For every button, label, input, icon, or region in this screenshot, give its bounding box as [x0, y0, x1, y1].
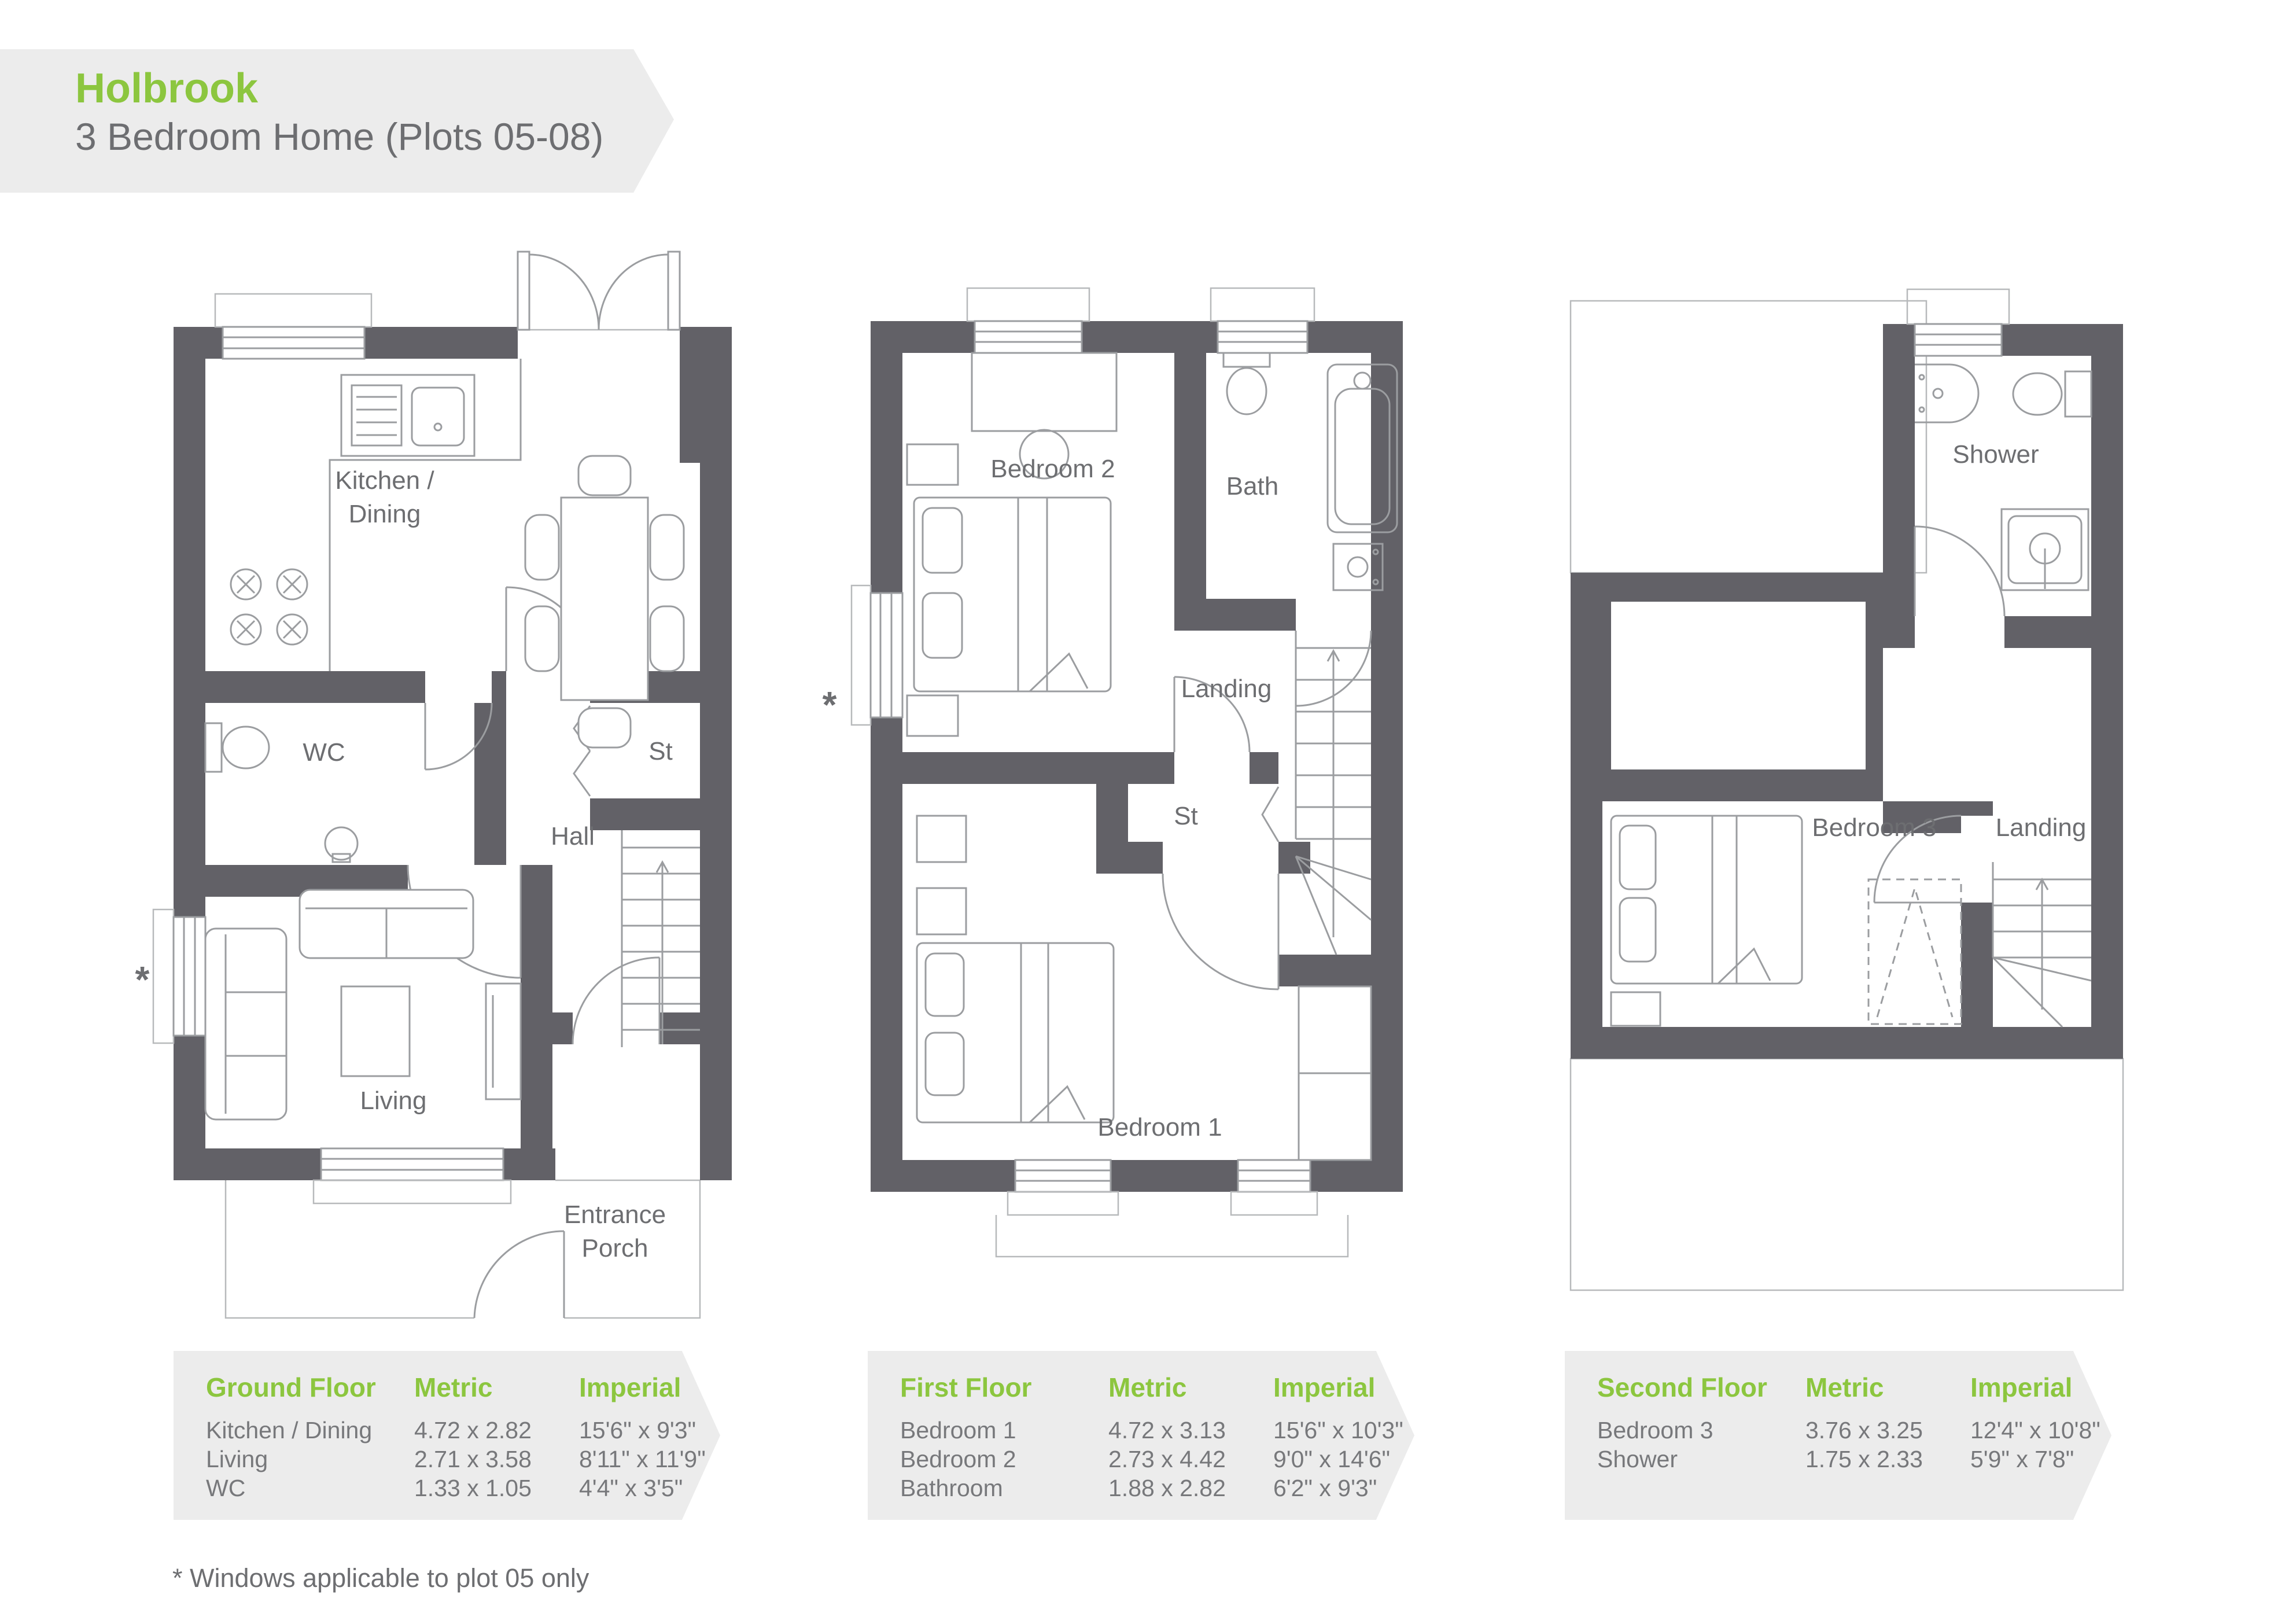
room-label-living: Living	[360, 1087, 427, 1115]
table-row: Shower 1.75 x 2.33 5'9" x 7'8"	[1597, 1445, 2111, 1474]
cell-metric: 4.72 x 2.82	[414, 1416, 579, 1445]
cell-metric: 2.73 x 4.42	[1108, 1445, 1273, 1474]
header-banner: Holbrook 3 Bedroom Home (Plots 05-08)	[0, 49, 674, 193]
cell-metric: 1.88 x 2.82	[1108, 1474, 1273, 1503]
room-label-entrance-2: Porch	[582, 1234, 648, 1262]
col-imperial: Imperial	[1273, 1372, 1414, 1403]
col-imperial: Imperial	[579, 1372, 720, 1403]
first-floor-plan: Bedroom 2 Bath Landing St Bedroom 1 *	[810, 278, 1423, 1284]
room-label-kitchen-1: Kitchen /	[335, 466, 434, 495]
cell-room: Bedroom 2	[900, 1445, 1108, 1474]
eaves-void	[1611, 602, 1866, 769]
room-label-st: St	[648, 737, 673, 765]
wardrobe-dashed	[1869, 879, 1961, 1024]
table-title: Second Floor	[1597, 1372, 1805, 1403]
room-label-bedroom1: Bedroom 1	[1097, 1113, 1222, 1141]
table-row: Kitchen / Dining 4.72 x 2.82 15'6" x 9'3…	[206, 1416, 720, 1445]
table-row: Bedroom 1 4.72 x 3.13 15'6" x 10'3"	[900, 1416, 1414, 1445]
stairs	[1993, 862, 2091, 1027]
roof-hatch-bottom	[1571, 1059, 2123, 1290]
room-label-shower: Shower	[1952, 440, 2039, 469]
cell-imperial: 5'9" x 7'8"	[1970, 1445, 2111, 1474]
roof-hatch-top	[1571, 301, 1926, 573]
floorplan-page: Holbrook 3 Bedroom Home (Plots 05-08)	[0, 0, 2296, 1624]
shower-door-opening	[1915, 616, 2004, 648]
table-row: Living 2.71 x 3.58 8'11" x 11'9"	[206, 1445, 720, 1474]
window-note-asterisk: *	[135, 959, 150, 1000]
second-floor-plan: Shower Bedroom 3 Landing	[1533, 278, 2146, 1296]
cell-metric: 4.72 x 3.13	[1108, 1416, 1273, 1445]
bedroom3-furniture	[1611, 816, 1961, 1026]
col-metric: Metric	[1108, 1372, 1273, 1403]
room-label-landing: Landing	[1181, 675, 1272, 703]
table-row: WC 1.33 x 1.05 4'4" x 3'5"	[206, 1474, 720, 1503]
table-header: First Floor Metric Imperial	[900, 1372, 1414, 1403]
cell-imperial: 12'4" x 10'8"	[1970, 1416, 2111, 1445]
cell-metric: 2.71 x 3.58	[414, 1445, 579, 1474]
room-label-st: St	[1174, 802, 1198, 830]
room-label-entrance-1: Entrance	[564, 1200, 666, 1229]
cell-metric: 3.76 x 3.25	[1805, 1416, 1970, 1445]
cell-imperial: 9'0" x 14'6"	[1273, 1445, 1414, 1474]
ground-floor-plan: Kitchen / Dining WC St Hall Living Entra…	[121, 243, 746, 1342]
table-row: Bedroom 3 3.76 x 3.25 12'4" x 10'8"	[1597, 1416, 2111, 1445]
bedroom2-furniture	[907, 353, 1116, 736]
table-header: Second Floor Metric Imperial	[1597, 1372, 2111, 1403]
cell-room: Bedroom 1	[900, 1416, 1108, 1445]
window-note-asterisk: *	[823, 684, 837, 726]
room-label-landing: Landing	[1996, 813, 2087, 842]
cell-imperial: 6'2" x 9'3"	[1273, 1474, 1414, 1503]
bedroom3-door-opening	[1961, 816, 1993, 903]
cell-metric: 1.75 x 2.33	[1805, 1445, 1970, 1474]
cell-imperial: 15'6" x 9'3"	[579, 1416, 720, 1445]
cell-metric: 1.33 x 1.05	[414, 1474, 579, 1503]
shower-fittings	[1915, 364, 2091, 590]
cell-room: Kitchen / Dining	[206, 1416, 414, 1445]
cell-imperial: 15'6" x 10'3"	[1273, 1416, 1414, 1445]
col-metric: Metric	[1805, 1372, 1970, 1403]
bedroom2-door-opening	[1174, 752, 1250, 784]
dining-table	[525, 456, 684, 747]
cell-room: Living	[206, 1445, 414, 1474]
cell-imperial: 4'4" x 3'5"	[579, 1474, 720, 1503]
second-floor-dimensions-table: Second Floor Metric Imperial Bedroom 3 3…	[1565, 1351, 2111, 1520]
footnote: * Windows applicable to plot 05 only	[172, 1563, 589, 1593]
room-label-wc: WC	[303, 738, 345, 767]
table-title: First Floor	[900, 1372, 1108, 1403]
cell-room: Shower	[1597, 1445, 1805, 1474]
table-row: Bathroom 1.88 x 2.82 6'2" x 9'3"	[900, 1474, 1414, 1503]
living-furniture	[205, 890, 521, 1120]
room-label-bath: Bath	[1226, 472, 1279, 500]
room-label-bedroom2: Bedroom 2	[990, 455, 1115, 483]
cell-room: Bedroom 3	[1597, 1416, 1805, 1445]
cell-room: Bathroom	[900, 1474, 1108, 1503]
room-label-bedroom3: Bedroom 3	[1812, 813, 1936, 842]
windows	[1907, 289, 2009, 356]
stairs	[1296, 631, 1371, 955]
room-label-kitchen-2: Dining	[349, 500, 421, 528]
table-title: Ground Floor	[206, 1372, 414, 1403]
hob-icon	[231, 569, 307, 645]
col-metric: Metric	[414, 1372, 579, 1403]
bath-door-opening	[1296, 599, 1371, 631]
first-floor-dimensions-table: First Floor Metric Imperial Bedroom 1 4.…	[868, 1351, 1414, 1520]
cell-imperial: 8'11" x 11'9"	[579, 1445, 720, 1474]
room-label-hall: Hall	[551, 822, 595, 850]
table-row: Bedroom 2 2.73 x 4.42 9'0" x 14'6"	[900, 1445, 1414, 1474]
cell-room: WC	[206, 1474, 414, 1503]
page-subtitle: 3 Bedroom Home (Plots 05-08)	[75, 117, 674, 156]
col-imperial: Imperial	[1970, 1372, 2111, 1403]
french-doors	[518, 252, 680, 330]
table-header: Ground Floor Metric Imperial	[206, 1372, 720, 1403]
page-title: Holbrook	[75, 68, 674, 109]
ground-floor-dimensions-table: Ground Floor Metric Imperial Kitchen / D…	[174, 1351, 720, 1520]
